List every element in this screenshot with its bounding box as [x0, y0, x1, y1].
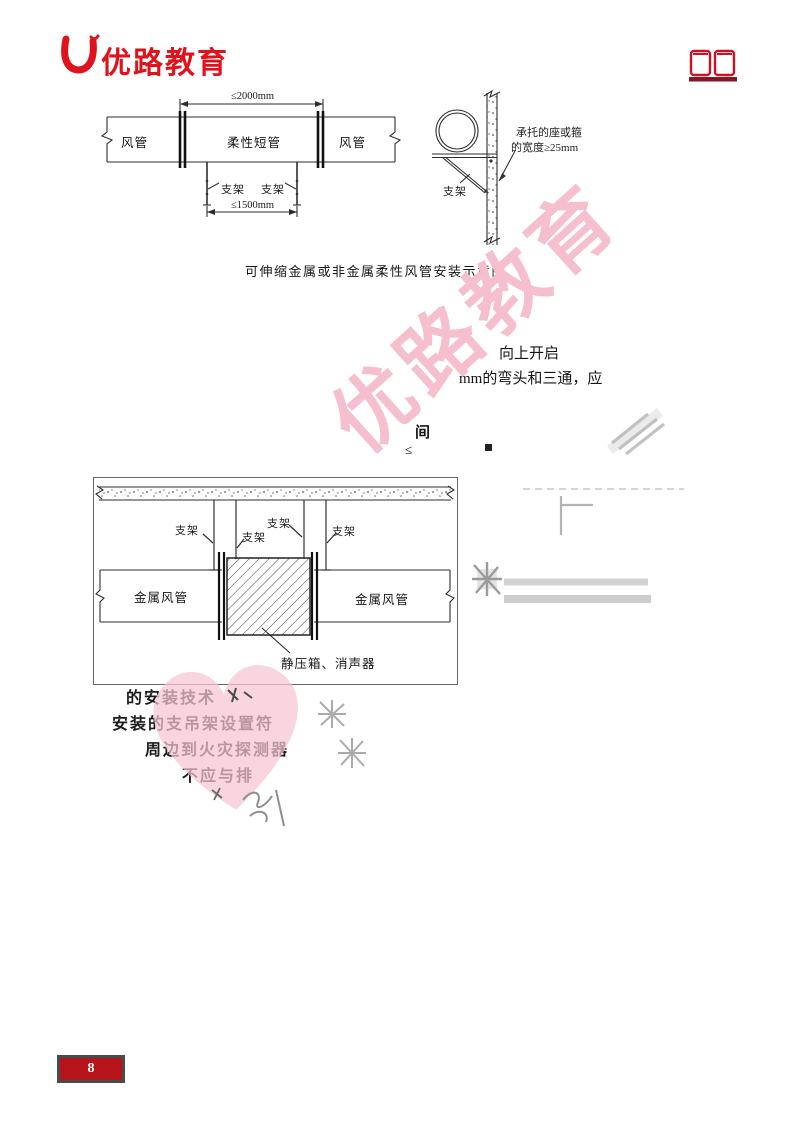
pencil-diagonal-strokes	[610, 412, 664, 454]
body-line3: 周边到火灾探测器	[145, 736, 289, 760]
text-fragment-jian: 间	[415, 421, 430, 442]
body-line4: 不应与排	[182, 762, 254, 786]
text-fragment-elbow-tee: mm的弯头和三通，应	[459, 367, 602, 388]
covered-text-fragment-block	[485, 444, 492, 451]
fig2-plenum-box	[227, 558, 310, 635]
pencil-tmark	[523, 489, 684, 535]
pencil-snowflakes	[318, 700, 366, 768]
text-fragment-leq: ≤	[405, 442, 412, 458]
figure2-plenum-silencer-diagram	[93, 477, 458, 685]
pencil-star-and-bars	[472, 562, 651, 599]
logo-text: 优路教育	[101, 38, 229, 82]
youlu-logo-swoosh-icon	[58, 34, 100, 76]
body-line1: 的安装技术	[126, 684, 216, 708]
document-page: 优路教育	[0, 0, 800, 1132]
page-number: 8	[88, 1061, 95, 1077]
text-fragment-open-up: 向上开启	[499, 342, 559, 363]
fig1-flanges	[180, 111, 323, 168]
fig1-duct-outline	[102, 99, 400, 217]
open-book-icon	[686, 46, 740, 84]
figure1-flexible-duct-diagram	[95, 88, 600, 293]
fig1-bolts	[206, 180, 299, 196]
fig2-ceiling-slab	[96, 486, 454, 500]
pencil-scribble-bottom	[212, 788, 284, 826]
page-number-box: 8	[57, 1055, 125, 1083]
body-line2: 安装的支吊架设置符	[112, 710, 274, 734]
fig1-dim-arrows	[180, 101, 323, 215]
fig1-wall-bracket-drawing	[432, 91, 515, 245]
pencil-marks-line1	[228, 688, 252, 702]
